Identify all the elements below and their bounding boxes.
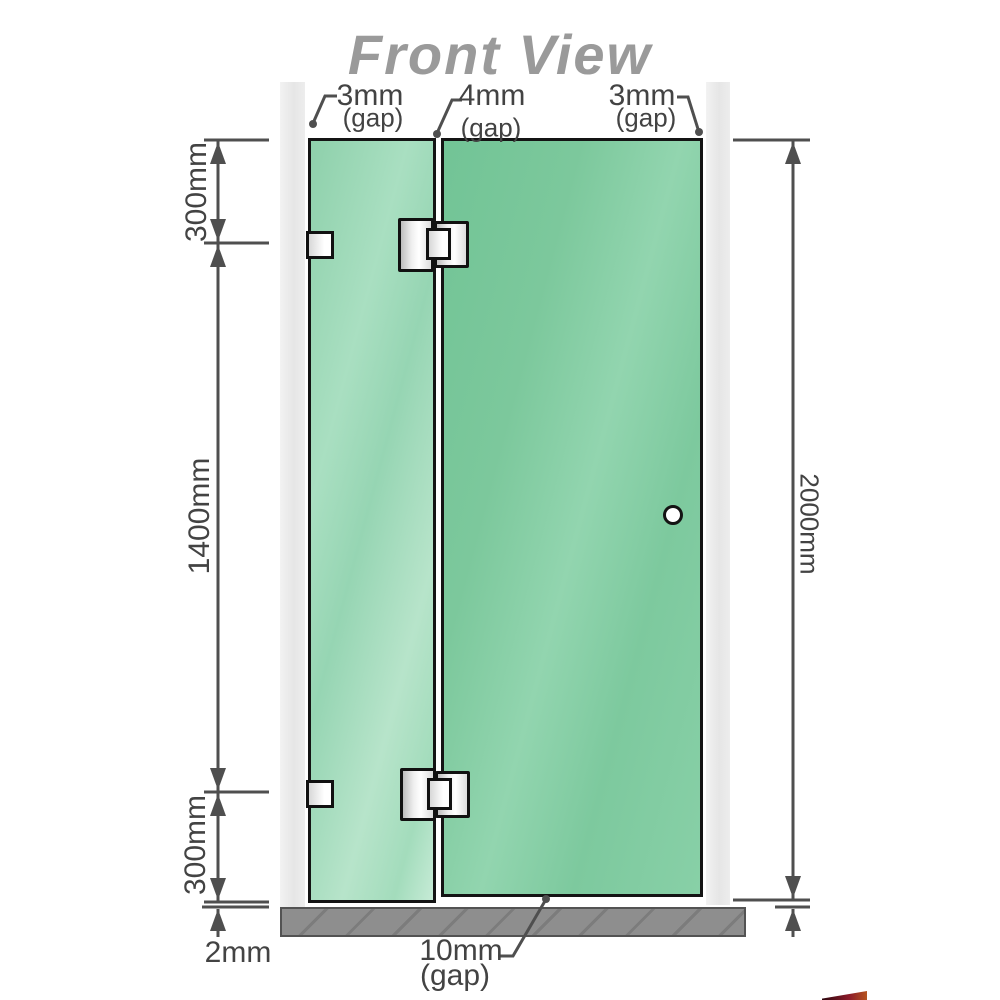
dimension-label-floor-gap-left: 2mm (205, 936, 272, 970)
gap-label-bottom-note: (gap) (420, 959, 490, 993)
diagram-canvas: Front View (0, 0, 1000, 1000)
page-title: Front View (0, 22, 1000, 87)
gap-label-left-note: (gap) (343, 103, 404, 134)
gap-label-right-note: (gap) (616, 103, 677, 134)
top-wall-bracket-icon (306, 231, 334, 259)
top-hinge-tab-icon (426, 228, 451, 260)
bottom-hinge-tab-icon (427, 778, 452, 810)
gap-label-middle-note: (gap) (461, 113, 522, 144)
left-wall (280, 82, 305, 907)
door-knob-icon (663, 505, 683, 525)
dimension-label-left-bottom: 300mm (179, 795, 213, 895)
bottom-wall-bracket-icon (306, 780, 334, 808)
dimension-label-left-top: 300mm (180, 142, 214, 242)
floor-base (280, 907, 746, 937)
dimension-label-left-middle: 1400mm (183, 458, 217, 575)
dimension-label-right-total: 2000mm (794, 473, 825, 574)
watermark-logo-sliver (822, 991, 867, 1000)
right-wall (706, 82, 730, 905)
gap-label-middle-value: 4mm (459, 79, 526, 113)
